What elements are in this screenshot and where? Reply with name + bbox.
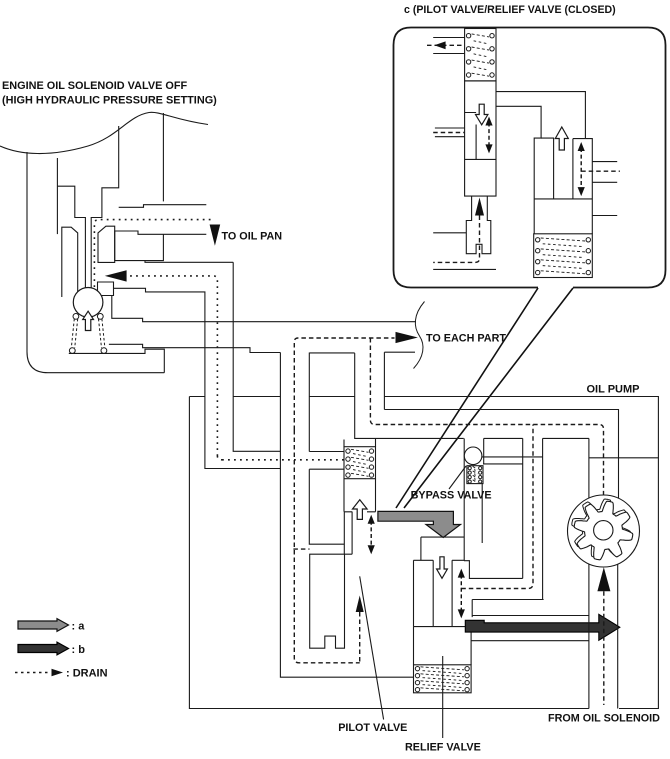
svg-text:PILOT VALVE: PILOT VALVE	[338, 722, 407, 734]
svg-text:RELIEF VALVE: RELIEF VALVE	[405, 742, 481, 754]
svg-text:ENGINE OIL SOLENOID VALVE OFF: ENGINE OIL SOLENOID VALVE OFF	[2, 80, 188, 92]
svg-text:: DRAIN: : DRAIN	[66, 668, 108, 680]
svg-text:OIL PUMP: OIL PUMP	[587, 384, 640, 396]
svg-text:TO EACH PART: TO EACH PART	[426, 333, 506, 345]
svg-text:TO OIL PAN: TO OIL PAN	[222, 231, 283, 243]
svg-text:BYPASS VALVE: BYPASS VALVE	[411, 490, 492, 502]
svg-text:FROM OIL SOLENOID: FROM OIL SOLENOID	[548, 712, 660, 724]
svg-text:(HIGH HYDRAULIC PRESSURE SETTI: (HIGH HYDRAULIC PRESSURE SETTING)	[2, 95, 217, 107]
svg-text:: a: : a	[72, 621, 86, 633]
svg-text:c (PILOT VALVE/RELIEF VALVE (C: c (PILOT VALVE/RELIEF VALVE (CLOSED)	[404, 4, 616, 16]
svg-text:: b: : b	[72, 644, 86, 656]
